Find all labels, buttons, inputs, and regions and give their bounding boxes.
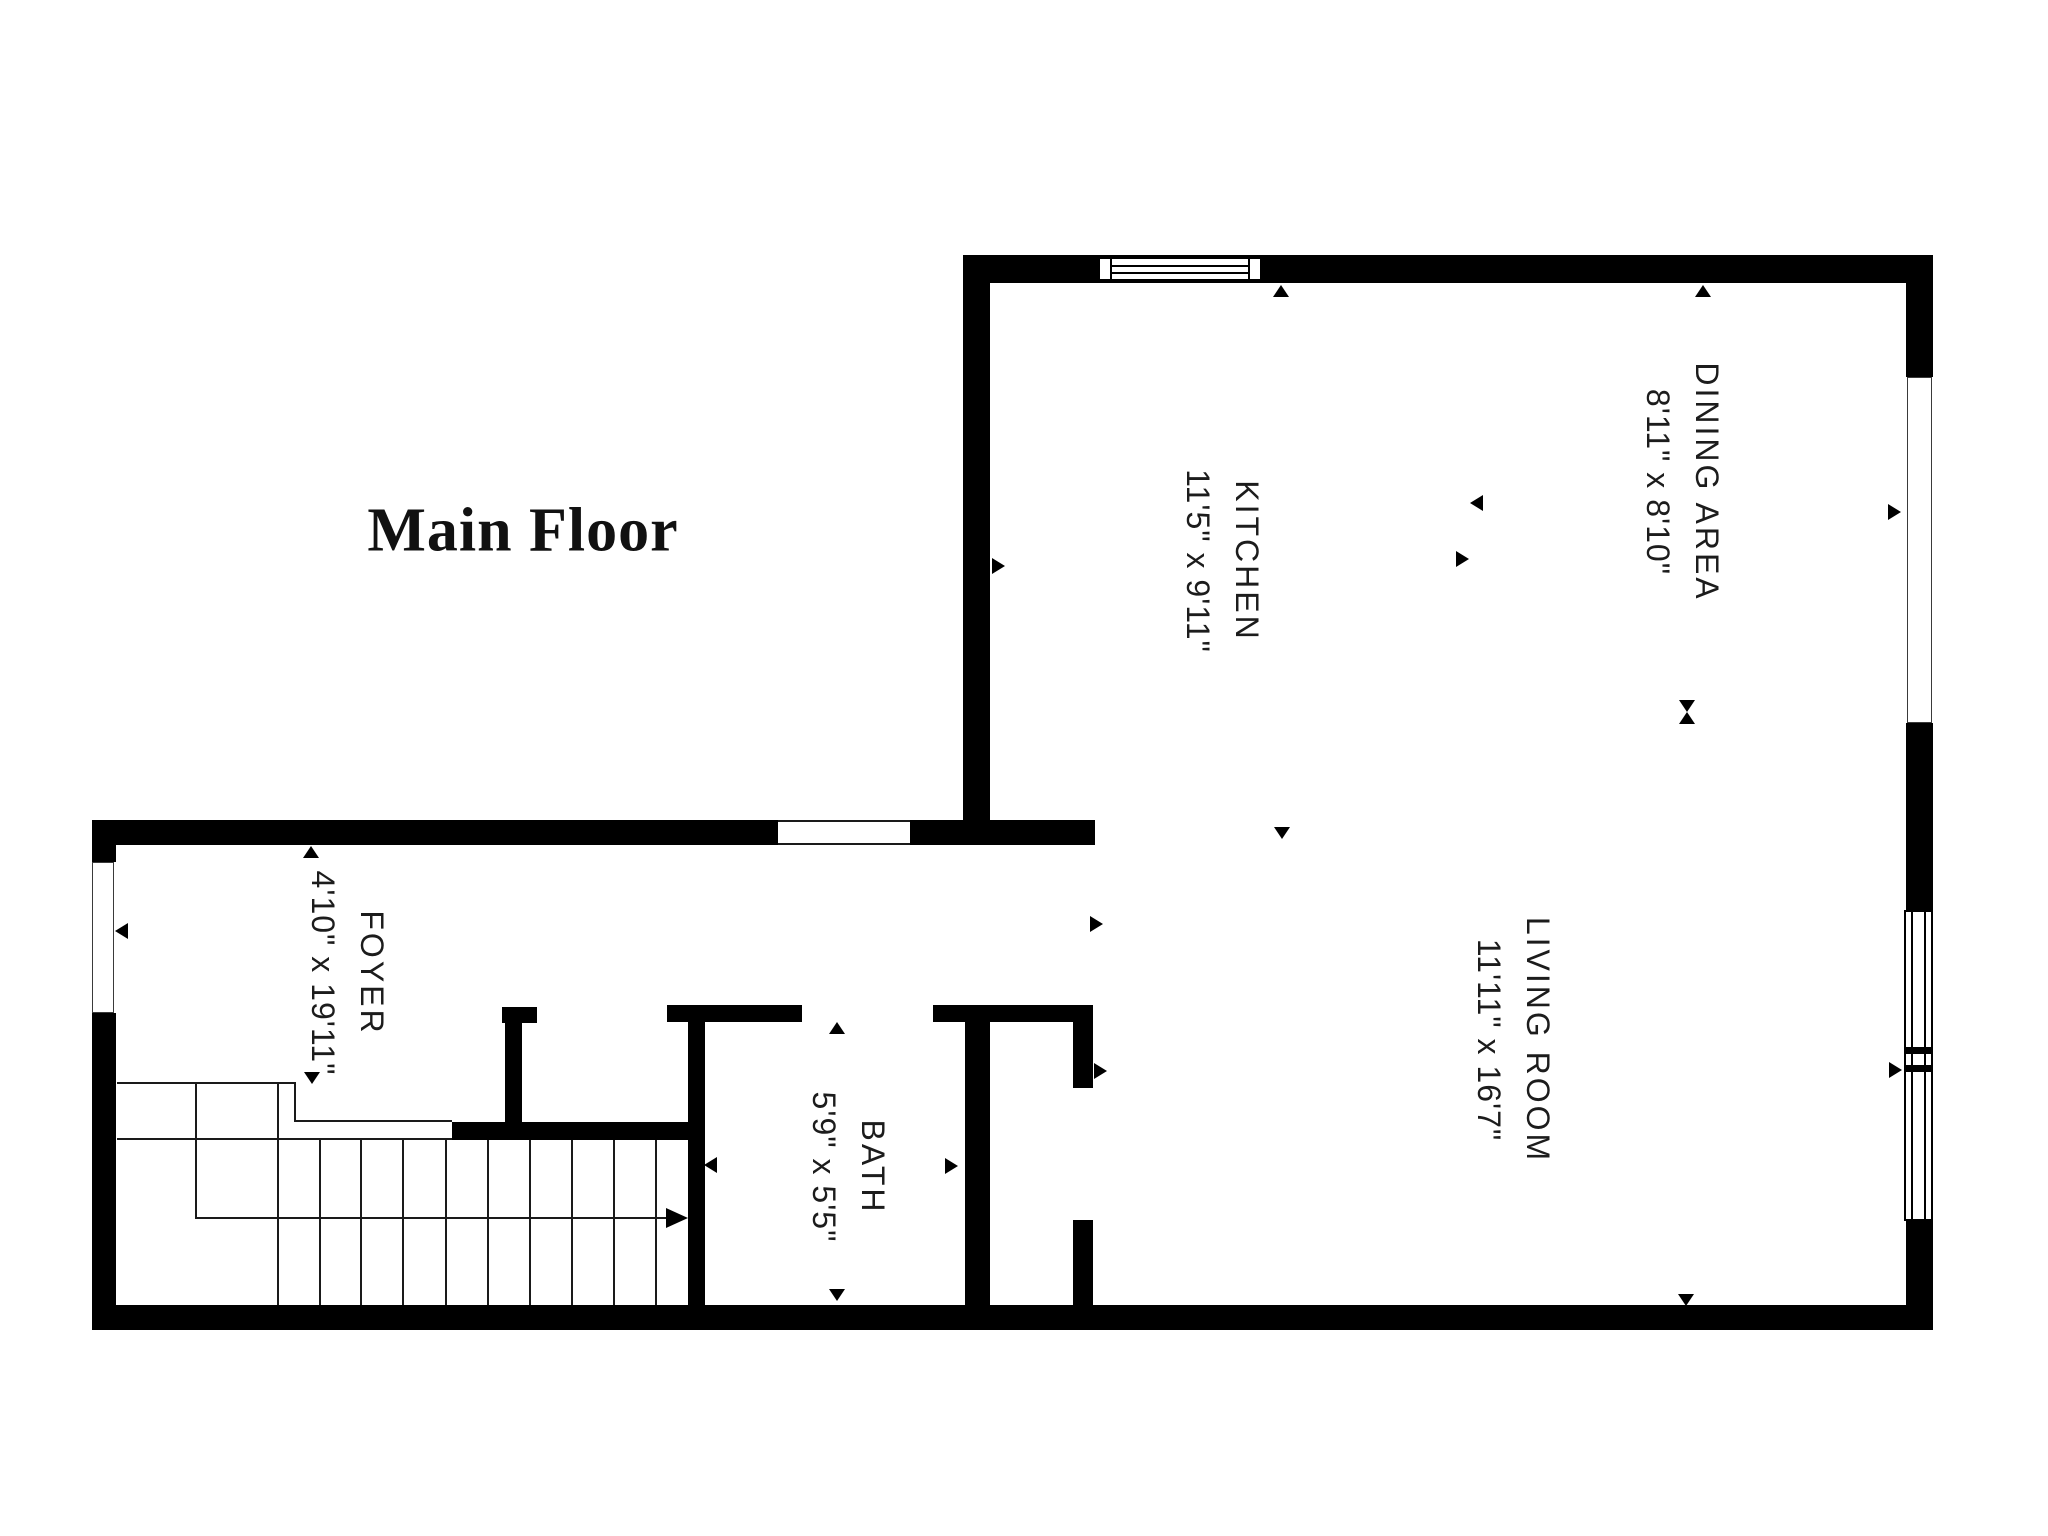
stair-step-notch-v — [294, 1082, 296, 1122]
dimension-arrow-right-icon — [1094, 1063, 1107, 1079]
stair-tread — [529, 1140, 531, 1305]
dimension-arrow-right-icon — [992, 558, 1005, 574]
wall-bath-right — [965, 1022, 990, 1305]
room-name: LIVING ROOM — [1513, 917, 1562, 1163]
dimension-arrow-down-icon — [1679, 700, 1695, 712]
dimension-arrow-right-icon — [1456, 551, 1469, 567]
stair-tread — [613, 1140, 615, 1305]
floor-plan: Main Floor — [0, 0, 2048, 1536]
page-title: Main Floor — [367, 496, 678, 567]
room-dimensions: 11'11" x 16'7" — [1464, 917, 1513, 1163]
stair-direction-arrow-shaft — [195, 1217, 668, 1219]
dimension-arrow-left-icon — [704, 1157, 717, 1173]
room-label-living-room: LIVING ROOM 11'11" x 16'7" — [1464, 917, 1562, 1163]
wall-foyer-top-right — [910, 820, 1095, 845]
wall-foyer-top-left — [92, 820, 778, 845]
window-right-upper — [1907, 377, 1932, 723]
wall-hall-right-upper — [1073, 1022, 1093, 1088]
room-label-dining-area: DINING AREA 8'11" x 8'10" — [1633, 362, 1731, 601]
wall-bath-top-left — [667, 1005, 802, 1022]
wall-right-middle — [1906, 723, 1933, 910]
dimension-arrow-right-icon — [1090, 916, 1103, 932]
wall-bottom — [92, 1305, 1933, 1330]
wall-foyer-left-lower — [92, 1013, 116, 1330]
wall-bath-left — [688, 1007, 705, 1305]
stair-step-notch-h — [294, 1120, 452, 1122]
wall-right-upper — [1906, 255, 1933, 377]
dimension-arrow-down-icon — [1678, 1294, 1694, 1306]
room-label-kitchen: KITCHEN 11'5" x 9'11" — [1173, 469, 1271, 653]
dimension-arrow-right-icon — [945, 1158, 958, 1174]
window-post — [1110, 259, 1112, 279]
stair-left-edge-line — [277, 1082, 279, 1305]
window-mullion — [1112, 272, 1248, 274]
room-name: FOYER — [347, 871, 396, 1076]
stair-tread — [402, 1140, 404, 1305]
room-label-bath: BATH 5'9" x 5'5" — [799, 1092, 897, 1243]
dimension-arrow-left-icon — [1470, 495, 1483, 511]
room-dimensions: 4'10" x 19'11" — [298, 871, 347, 1076]
dimension-arrow-down-icon — [829, 1289, 845, 1301]
dimension-arrow-left-icon — [115, 923, 128, 939]
wall-foyer-left-stub — [92, 820, 116, 862]
room-dimensions: 11'5" x 9'11" — [1173, 469, 1222, 653]
window-foyer-left — [92, 862, 114, 1013]
door-opening-bottom-line — [778, 843, 910, 845]
dimension-arrow-up-icon — [1679, 712, 1695, 724]
wall-stair-top — [452, 1122, 705, 1140]
stair-tread — [319, 1140, 321, 1305]
wall-hall-right-lower — [1073, 1220, 1093, 1305]
window-top-wall — [1098, 257, 1262, 281]
room-name: KITCHEN — [1222, 469, 1271, 653]
stair-tread — [571, 1140, 573, 1305]
room-dimensions: 5'9" x 5'5" — [799, 1092, 848, 1243]
wall-closet-stub-cap — [502, 1007, 537, 1023]
door-opening-top-line — [778, 820, 910, 822]
room-name: BATH — [848, 1092, 897, 1243]
wall-kitchen-left — [963, 255, 990, 845]
dimension-arrow-right-icon — [1889, 1062, 1902, 1078]
dimension-arrow-up-icon — [1273, 285, 1289, 297]
stair-tread — [445, 1140, 447, 1305]
stair-tread — [655, 1140, 657, 1305]
dimension-arrow-up-icon — [829, 1022, 845, 1034]
stair-tread — [360, 1140, 362, 1305]
window-transom-bar — [1906, 1047, 1931, 1054]
room-label-foyer: FOYER 4'10" x 19'11" — [298, 871, 396, 1076]
stair-landing-divider — [195, 1082, 197, 1218]
dimension-arrow-up-icon — [303, 846, 319, 858]
dimension-arrow-down-icon — [1274, 827, 1290, 839]
window-transom-bar — [1906, 1065, 1931, 1072]
stair-direction-arrow-icon — [666, 1208, 688, 1228]
wall-bath-top-right — [933, 1005, 1093, 1022]
dimension-arrow-up-icon — [1695, 285, 1711, 297]
window-right-lower — [1904, 910, 1933, 1221]
stair-landing-top-line — [117, 1082, 294, 1084]
dimension-arrow-right-icon — [1888, 504, 1901, 520]
room-dimensions: 8'11" x 8'10" — [1633, 362, 1682, 601]
window-post — [1248, 259, 1250, 279]
window-mullion — [1112, 265, 1248, 267]
stair-tread — [487, 1140, 489, 1305]
room-name: DINING AREA — [1682, 362, 1731, 601]
wall-closet-stub — [505, 1023, 522, 1122]
